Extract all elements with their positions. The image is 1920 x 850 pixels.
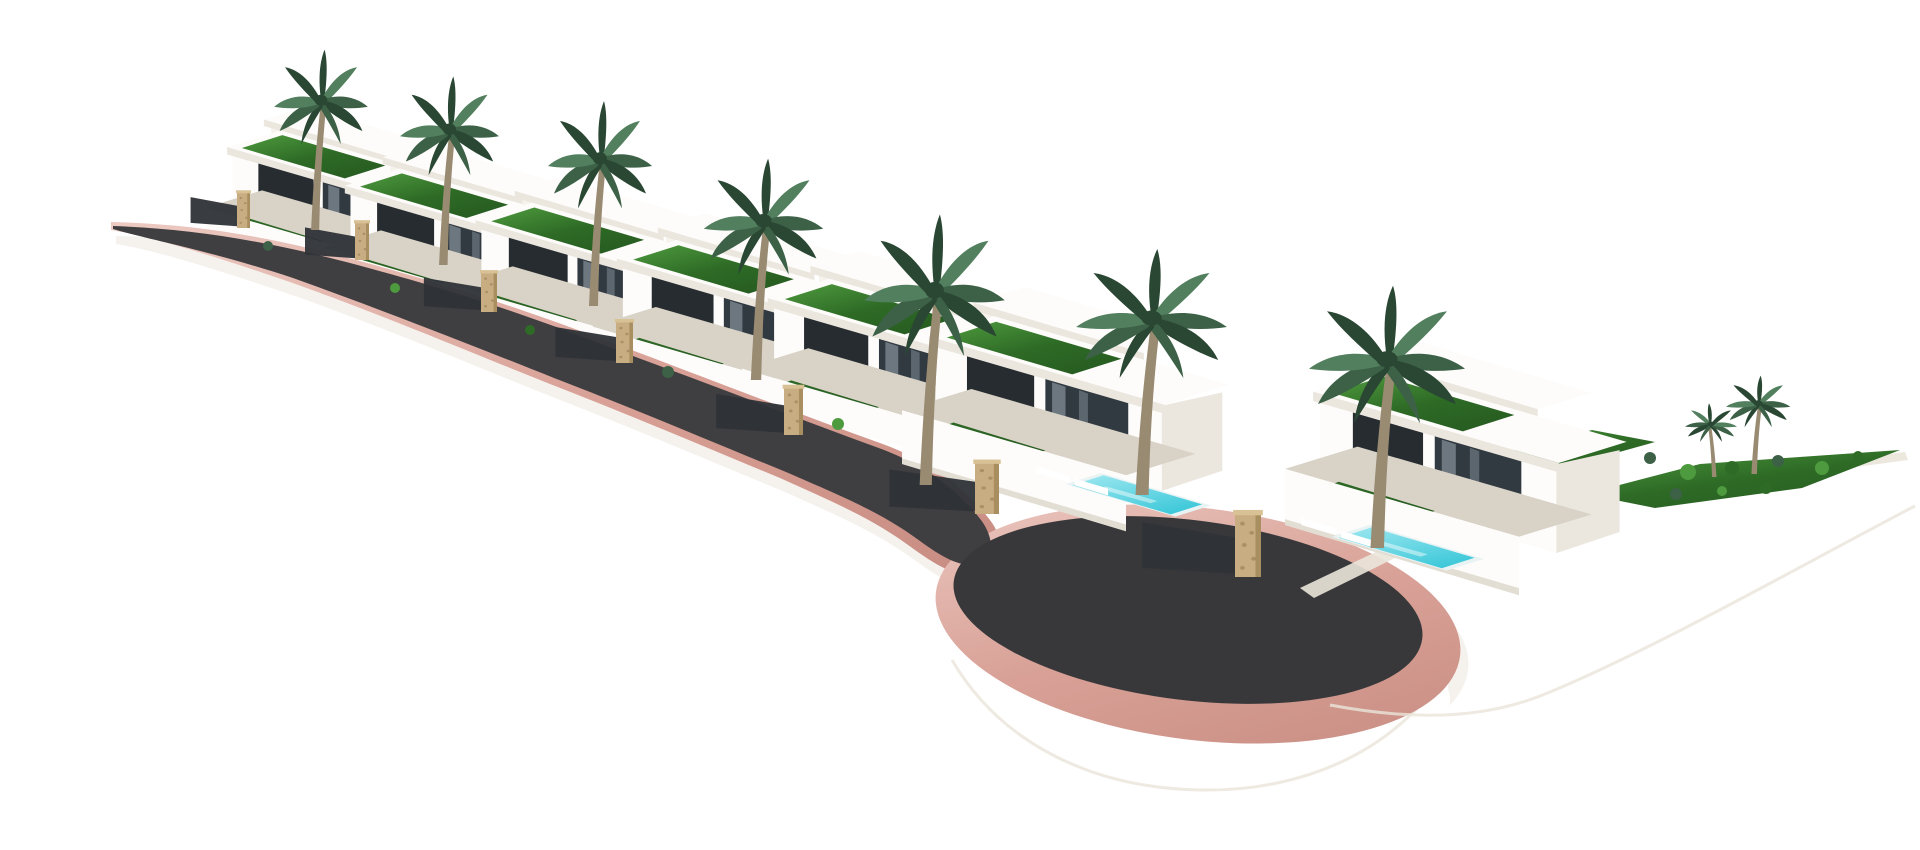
stone-speckle xyxy=(240,209,242,211)
shrub xyxy=(662,366,674,378)
stone-speckle xyxy=(244,202,246,204)
stone-speckle xyxy=(363,233,366,235)
palm-crown xyxy=(1377,351,1398,367)
stone-pillar-edge xyxy=(799,387,803,435)
palm-crown xyxy=(755,214,771,228)
shrub xyxy=(1680,464,1696,480)
stone-speckle xyxy=(627,350,630,353)
stone-speckle xyxy=(364,248,367,250)
stone-speckle xyxy=(625,333,628,336)
stone-speckle xyxy=(1240,522,1245,526)
stone-speckle xyxy=(485,291,488,293)
stone-speckle xyxy=(789,410,793,413)
stone-speckle xyxy=(240,197,242,199)
stone-speckle xyxy=(240,222,242,224)
shrub xyxy=(525,325,535,335)
stone-speckle xyxy=(1242,543,1247,547)
shrub xyxy=(390,283,400,293)
stone-pillar-edge xyxy=(629,321,633,363)
stone-pillar-cap xyxy=(480,270,498,273)
stone-pillar-edge xyxy=(1255,513,1261,577)
render-canvas xyxy=(0,0,1920,850)
shrub xyxy=(1853,451,1863,461)
shrub xyxy=(832,418,844,430)
shrub xyxy=(1717,486,1727,496)
palm-crown xyxy=(315,95,328,106)
palm-crown xyxy=(443,124,456,136)
stone-speckle xyxy=(359,240,362,242)
stone-pillar-cap xyxy=(783,385,805,389)
stone-speckle xyxy=(245,217,247,219)
shrub xyxy=(1644,452,1656,464)
shrub xyxy=(1772,455,1784,467)
stone-speckle xyxy=(1240,566,1245,570)
stone-speckle xyxy=(491,299,494,301)
palm-crown xyxy=(1141,311,1161,326)
stone-speckle xyxy=(988,476,992,479)
stone-pillar-edge xyxy=(494,272,497,312)
palm-crown xyxy=(925,282,944,299)
stone-speckle xyxy=(980,469,984,472)
stone-pillar-cap xyxy=(615,319,634,323)
shrub xyxy=(1760,482,1772,494)
shrub xyxy=(1815,461,1829,475)
stone-pillar-cap xyxy=(236,190,251,193)
stone-pillar-cap xyxy=(1233,510,1263,515)
stone-speckle xyxy=(981,486,985,489)
stone-pillar-cap xyxy=(354,220,370,223)
stone-speckle xyxy=(484,305,487,307)
stone-pillar-edge xyxy=(994,462,999,514)
stone-speckle xyxy=(788,427,792,430)
shrub xyxy=(1725,461,1739,475)
palm-crown xyxy=(1708,422,1715,427)
stone-speckle xyxy=(358,253,361,255)
stone-speckle xyxy=(619,356,622,359)
stone-speckle xyxy=(484,277,487,279)
stone-speckle xyxy=(490,283,493,285)
stone-speckle xyxy=(990,498,994,501)
stone-pillar-edge xyxy=(247,192,250,228)
stone-speckle xyxy=(788,394,792,397)
stone-speckle xyxy=(358,227,361,229)
stone-speckle xyxy=(794,400,798,403)
stone-speckle xyxy=(1249,531,1254,535)
stone-pillar-edge xyxy=(366,222,369,260)
shrub xyxy=(263,241,273,251)
stone-speckle xyxy=(619,327,622,330)
stone-speckle xyxy=(1251,557,1256,561)
stone-speckle xyxy=(980,505,984,508)
shrub xyxy=(1670,488,1682,500)
villa-development-illustration xyxy=(0,0,1920,850)
stone-pillar-cap xyxy=(973,460,1000,464)
stone-speckle xyxy=(620,341,623,344)
palm-crown xyxy=(1754,400,1763,406)
stone-speckle xyxy=(796,420,800,423)
palm-crown xyxy=(593,152,607,165)
